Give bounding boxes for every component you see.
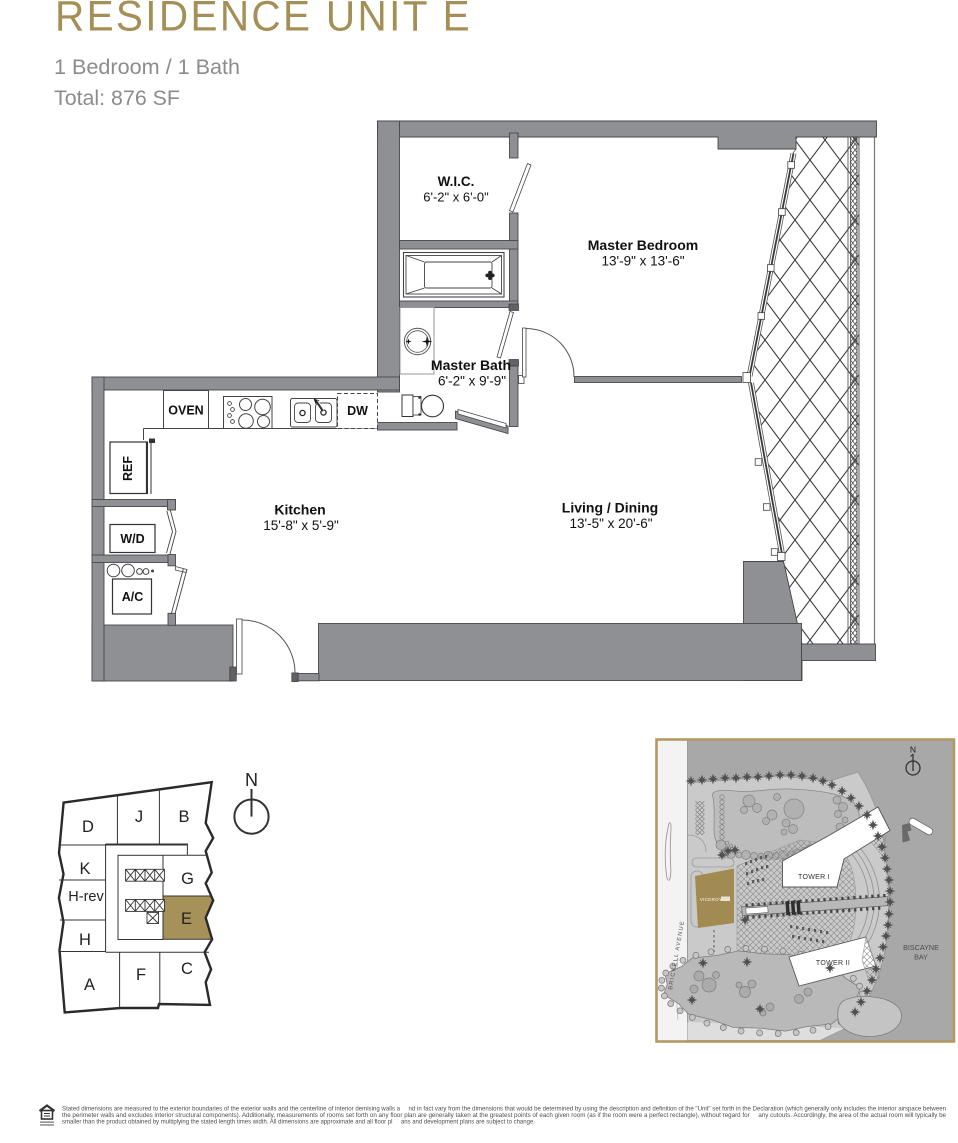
- svg-text:A: A: [84, 976, 95, 994]
- svg-text:W.I.C.: W.I.C.: [438, 174, 475, 189]
- svg-text:BISCAYNE: BISCAYNE: [903, 943, 939, 952]
- svg-text:Stated dimensions are measured: Stated dimensions are measured to the ex…: [62, 1107, 946, 1113]
- svg-text:W/D: W/D: [120, 532, 144, 546]
- svg-text:RESIDENCE UNIT E: RESIDENCE UNIT E: [55, 0, 472, 41]
- svg-text:N: N: [910, 745, 916, 755]
- svg-text:H-rev: H-rev: [68, 889, 104, 905]
- svg-text:OVEN: OVEN: [168, 404, 203, 418]
- svg-text:Kitchen: Kitchen: [274, 502, 325, 518]
- svg-text:smaller than the product obtai: smaller than the product obtained by mul…: [62, 1120, 535, 1126]
- svg-text:6'-2" x 6'-0": 6'-2" x 6'-0": [423, 190, 489, 205]
- svg-text:Master Bedroom: Master Bedroom: [588, 237, 698, 253]
- svg-text:D: D: [82, 818, 94, 836]
- svg-text:TOWER I: TOWER I: [798, 874, 830, 881]
- svg-text:N: N: [245, 770, 258, 790]
- svg-text:DW: DW: [347, 404, 368, 418]
- svg-text:BAY: BAY: [914, 953, 928, 962]
- svg-text:REF: REF: [121, 456, 135, 481]
- svg-text:15'-8" x 5'-9": 15'-8" x 5'-9": [263, 518, 339, 533]
- svg-text:13'-9" x 13'-6": 13'-9" x 13'-6": [601, 254, 684, 269]
- svg-text:J: J: [135, 808, 143, 826]
- svg-text:H: H: [79, 931, 91, 949]
- svg-text:B: B: [178, 808, 189, 826]
- svg-text:E: E: [181, 910, 192, 928]
- svg-text:Living / Dining: Living / Dining: [562, 500, 658, 516]
- svg-text:F: F: [136, 966, 146, 984]
- svg-text:G: G: [181, 870, 194, 888]
- svg-text:1 Bedroom / 1 Bath: 1 Bedroom / 1 Bath: [54, 56, 240, 79]
- svg-text:TOWER II: TOWER II: [816, 960, 850, 967]
- svg-text:VICEROY: VICEROY: [700, 897, 722, 902]
- svg-text:A/C: A/C: [122, 590, 144, 604]
- svg-text:C: C: [181, 960, 193, 978]
- svg-text:6'-2" x 9'-9": 6'-2" x 9'-9": [438, 374, 506, 389]
- svg-text:Master Bath: Master Bath: [431, 357, 511, 373]
- svg-text:Total: 876 SF: Total: 876 SF: [54, 87, 180, 110]
- svg-text:13'-5" x 20'-6": 13'-5" x 20'-6": [569, 516, 652, 531]
- svg-text:K: K: [79, 860, 90, 878]
- svg-text:the perimeter walls and exclud: the perimeter walls and excludes interio…: [62, 1113, 947, 1119]
